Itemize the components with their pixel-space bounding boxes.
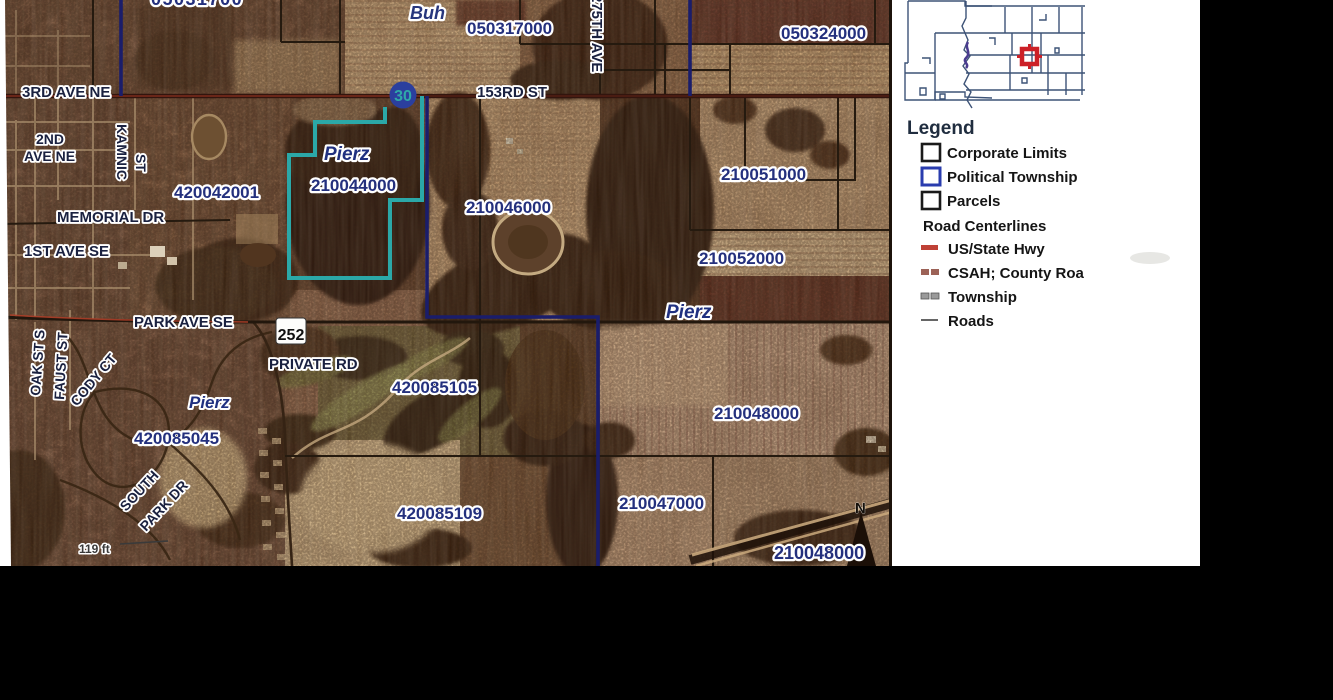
svg-text:420085105: 420085105 [392,378,477,397]
svg-text:N: N [855,500,866,517]
svg-text:2ND: 2ND [36,131,64,147]
svg-text:30: 30 [394,88,412,105]
svg-text:210044000: 210044000 [311,176,396,195]
svg-text:210046000: 210046000 [466,198,551,217]
svg-text:Corporate Limits: Corporate Limits [947,145,1067,162]
svg-text:275TH AVE: 275TH AVE [588,0,605,72]
svg-text:Roads: Roads [948,313,994,330]
svg-text:CSAH; County Roa: CSAH; County Roa [948,265,1084,282]
svg-text:Road Centerlines: Road Centerlines [923,218,1046,235]
svg-text:210048000: 210048000 [774,543,864,563]
svg-text:210052000: 210052000 [699,249,784,268]
svg-text:Buh: Buh [410,3,445,23]
svg-text:050324000: 050324000 [781,24,866,43]
svg-text:1ST AVE SE: 1ST AVE SE [24,243,109,260]
svg-text:119 ft: 119 ft [79,542,110,556]
svg-text:05031700: 05031700 [151,0,243,9]
svg-text:ST: ST [133,154,149,172]
svg-text:252: 252 [278,327,305,344]
svg-text:AVE NE: AVE NE [24,148,75,164]
svg-text:420085045: 420085045 [134,429,219,448]
svg-text:Pierz: Pierz [324,144,370,165]
svg-text:MEMORIAL DR: MEMORIAL DR [57,209,164,226]
svg-text:3RD AVE NE: 3RD AVE NE [22,84,110,101]
svg-text:420085109: 420085109 [397,504,482,523]
svg-text:210051000: 210051000 [721,165,806,184]
svg-text:KAMNIC: KAMNIC [114,124,130,180]
svg-text:Legend: Legend [907,118,975,139]
svg-text:Pierz: Pierz [666,302,712,323]
svg-text:210048000: 210048000 [714,404,799,423]
svg-text:Political Township: Political Township [947,169,1078,186]
svg-text:Parcels: Parcels [947,193,1000,210]
svg-text:Township: Township [948,289,1017,306]
svg-text:Pierz: Pierz [189,393,230,412]
svg-text:PARK AVE SE: PARK AVE SE [134,314,233,331]
svg-text:420042001: 420042001 [174,183,259,202]
svg-text:153RD ST: 153RD ST [477,84,547,101]
svg-text:210047000: 210047000 [619,494,704,513]
svg-text:050317000: 050317000 [467,19,552,38]
svg-text:US/State Hwy: US/State Hwy [948,241,1045,258]
svg-text:PRIVATE RD: PRIVATE RD [269,356,358,373]
